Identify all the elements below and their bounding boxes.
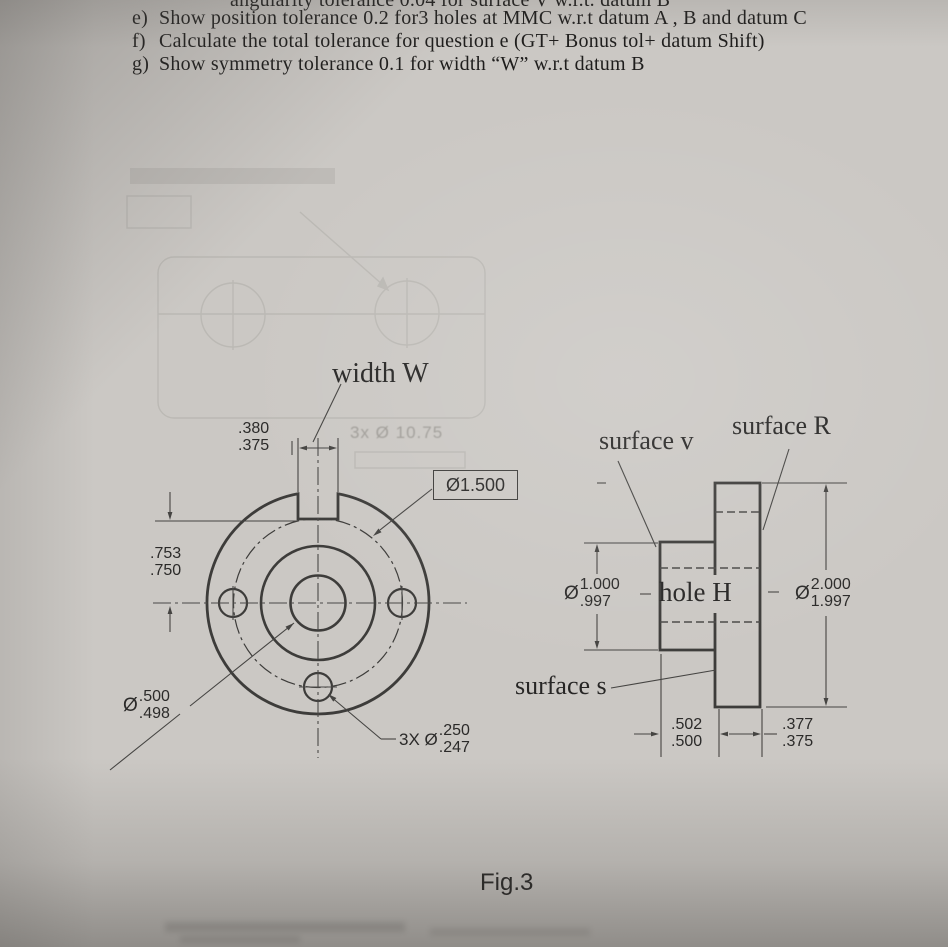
dim-hub-length: .502.500 — [671, 716, 702, 750]
bottom-bleed-smudges — [165, 922, 590, 943]
question-text: Show position tolerance 0.2 for3 holes a… — [159, 7, 807, 29]
question-marker: f) — [132, 30, 159, 53]
question-text: Show symmetry tolerance 0.1 for width “W… — [159, 53, 645, 75]
centerlines — [153, 438, 467, 758]
dim-flange-thickness: .377.375 — [782, 716, 813, 750]
dim-lower: .997 — [580, 593, 620, 610]
question-line-f: f)Calculate the total tolerance for ques… — [132, 30, 765, 53]
bolt-circle — [234, 519, 403, 688]
question-line-e: e)Show position tolerance 0.2 for3 holes… — [132, 7, 807, 30]
question-line-g: g)Show symmetry tolerance 0.1 for width … — [132, 53, 645, 76]
width-w-leader — [313, 384, 341, 442]
dim-slot-depth: .753.750 — [150, 545, 181, 579]
dim-upper: 1.000 — [580, 576, 620, 593]
dim-upper: .380 — [238, 420, 269, 437]
dim-upper: .500 — [139, 688, 170, 705]
question-text: Calculate the total tolerance for questi… — [159, 30, 765, 52]
ghost-bleed-text: 3x Ø 10.75 — [350, 423, 443, 443]
dim-slot-width: .380.375 — [238, 420, 269, 454]
dim-lower: .247 — [439, 739, 470, 756]
dim-hub-diameter: Ø 1.000.997 — [564, 576, 620, 610]
label-surface-s: surface s — [515, 671, 607, 701]
surface-v-leader — [618, 461, 656, 547]
dim-upper: .250 — [439, 722, 470, 739]
label-hole-h: hole H — [659, 577, 732, 608]
question-marker: e) — [132, 7, 159, 30]
bolt-circle-leader — [380, 489, 432, 530]
dim-lower: .500 — [671, 733, 702, 750]
dim-lower: .498 — [139, 705, 170, 722]
diameter-symbol: Ø — [123, 697, 138, 714]
dim-upper: .753 — [150, 545, 181, 562]
label-surface-v: surface v — [599, 426, 694, 456]
dim-flange-diameter: Ø 2.0001.997 — [795, 576, 851, 610]
small-holes-leader — [330, 696, 381, 739]
diameter-symbol: Ø — [795, 585, 810, 602]
dim-upper: 2.000 — [811, 576, 851, 593]
dim-small-holes: 3X Ø .250.247 — [399, 722, 470, 756]
count-diameter-prefix: 3X Ø — [399, 731, 438, 748]
dim-lower: 1.997 — [811, 593, 851, 610]
dim-upper: .377 — [782, 716, 813, 733]
surface-s-leader — [611, 670, 716, 688]
surface-r-leader — [763, 449, 789, 530]
photographed-page: angularity tolerance 0.04 for surface V … — [0, 0, 948, 947]
question-marker: g) — [132, 53, 159, 76]
dim-upper: .502 — [671, 716, 702, 733]
dim-center-hole: Ø .500.498 — [123, 688, 170, 722]
label-width-w: width W — [332, 358, 429, 390]
diameter-symbol: Ø — [564, 585, 579, 602]
dim-bolt-circle-callout: Ø1.500 — [433, 470, 518, 500]
label-surface-r: surface R — [732, 411, 831, 441]
dim-lower: .750 — [150, 562, 181, 579]
dim-lower: .375 — [782, 733, 813, 750]
center-hole-leader — [190, 623, 294, 706]
ghost-plate — [158, 257, 485, 418]
figure-caption: Fig.3 — [480, 869, 533, 897]
dim-lower: .375 — [238, 437, 269, 454]
